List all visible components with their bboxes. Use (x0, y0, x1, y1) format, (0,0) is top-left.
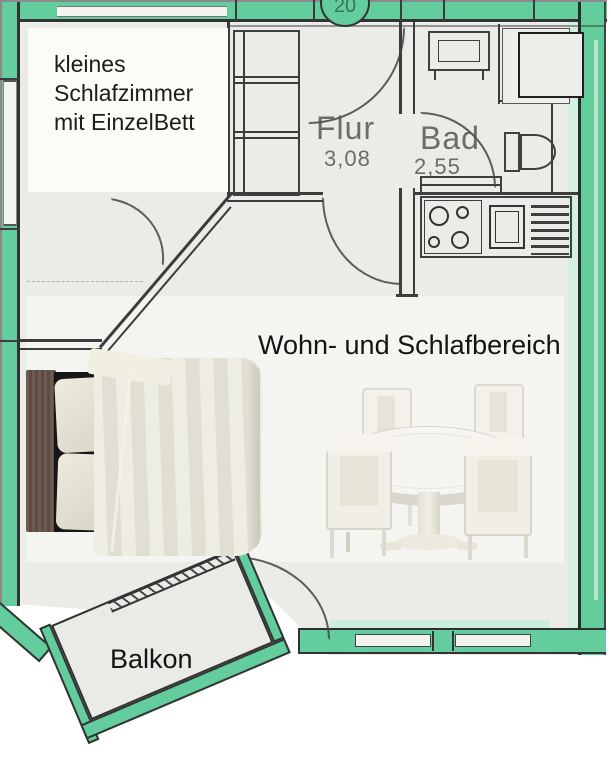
wardrobe-divider (233, 137, 300, 139)
bedroom-faint-line (27, 281, 143, 282)
unit-number: 20 (322, 0, 368, 18)
toilet-tank (504, 132, 520, 172)
wall-joint (0, 340, 20, 342)
sink-leg (482, 71, 484, 80)
wall-joint (533, 0, 535, 22)
stove-burner (429, 206, 449, 226)
floor-plan: 20 (0, 0, 611, 768)
hall-name: Flur (316, 110, 375, 147)
bed-duvet-edge-shade (248, 364, 260, 550)
wardrobe-divider (233, 131, 300, 133)
wall-bottom-fringe (330, 620, 550, 628)
wall-right-fringe (568, 22, 578, 654)
chair-leg (346, 532, 350, 552)
bedroom-label-line: kleines (54, 50, 195, 79)
wall-hall-bottom (227, 200, 323, 202)
bedroom-label: kleines Schlafzimmer mit EinzelBett (54, 50, 195, 137)
balcony-label: Balkon (110, 644, 193, 675)
wall-joint (400, 0, 402, 22)
shower-symbol (518, 32, 584, 98)
bed-image (24, 358, 262, 560)
wall-joint (313, 0, 315, 22)
wall-joint (0, 228, 20, 230)
bedroom-label-line: Schlafzimmer (54, 79, 195, 108)
wall-shower-partition (498, 24, 500, 104)
bed-headboard (26, 370, 56, 532)
dining-set-image (322, 382, 552, 560)
stove-burner (428, 236, 440, 248)
wall-cap (396, 294, 418, 297)
stove-burner (456, 206, 469, 219)
bedroom-window-left (3, 80, 17, 226)
living-area-label: Wohn- und Schlafbereich (258, 330, 561, 361)
chair-leg (468, 536, 472, 560)
bath-name: Bad (420, 120, 480, 157)
bedroom-window-top (57, 6, 227, 17)
wall-hall-bath (413, 22, 415, 114)
wall-right (578, 2, 606, 655)
chair-panel (340, 456, 378, 506)
dish-rack-symbol (531, 205, 569, 255)
wall-bedroom-bottom (20, 339, 102, 342)
bedroom-label-line: mit EinzelBett (54, 108, 195, 137)
bedroom-label-box: kleines Schlafzimmer mit EinzelBett (28, 28, 228, 192)
wall-right-window-line (594, 40, 598, 600)
chair-panel (478, 460, 518, 512)
wall-inner-top-line (230, 25, 606, 27)
hall-dimension: 3,08 (324, 146, 371, 172)
window-mullion (432, 631, 454, 651)
living-window-1 (355, 634, 431, 647)
wall-joint (0, 78, 20, 80)
chair-top-rail (464, 438, 532, 456)
chair-leg (330, 530, 334, 558)
sink-leg (434, 71, 436, 80)
table-base (396, 534, 462, 550)
wall-joint (443, 0, 445, 22)
chair-slat (489, 392, 507, 432)
wardrobe-divider (233, 82, 300, 84)
wardrobe-inner-line (243, 30, 245, 196)
stove-burner (451, 231, 469, 249)
table-foot (456, 542, 478, 550)
bath-sink-inner (438, 40, 480, 62)
chair-leg (524, 536, 528, 558)
chair-leg (382, 530, 386, 556)
bath-dimension: 2,55 (414, 154, 461, 180)
chair-top-rail (326, 434, 392, 452)
kitchen-sink-inner (495, 211, 519, 243)
wall-living-kitchen (413, 188, 415, 296)
wardrobe-divider (233, 76, 300, 78)
wall-joint (235, 0, 237, 22)
living-window-2 (455, 634, 531, 647)
